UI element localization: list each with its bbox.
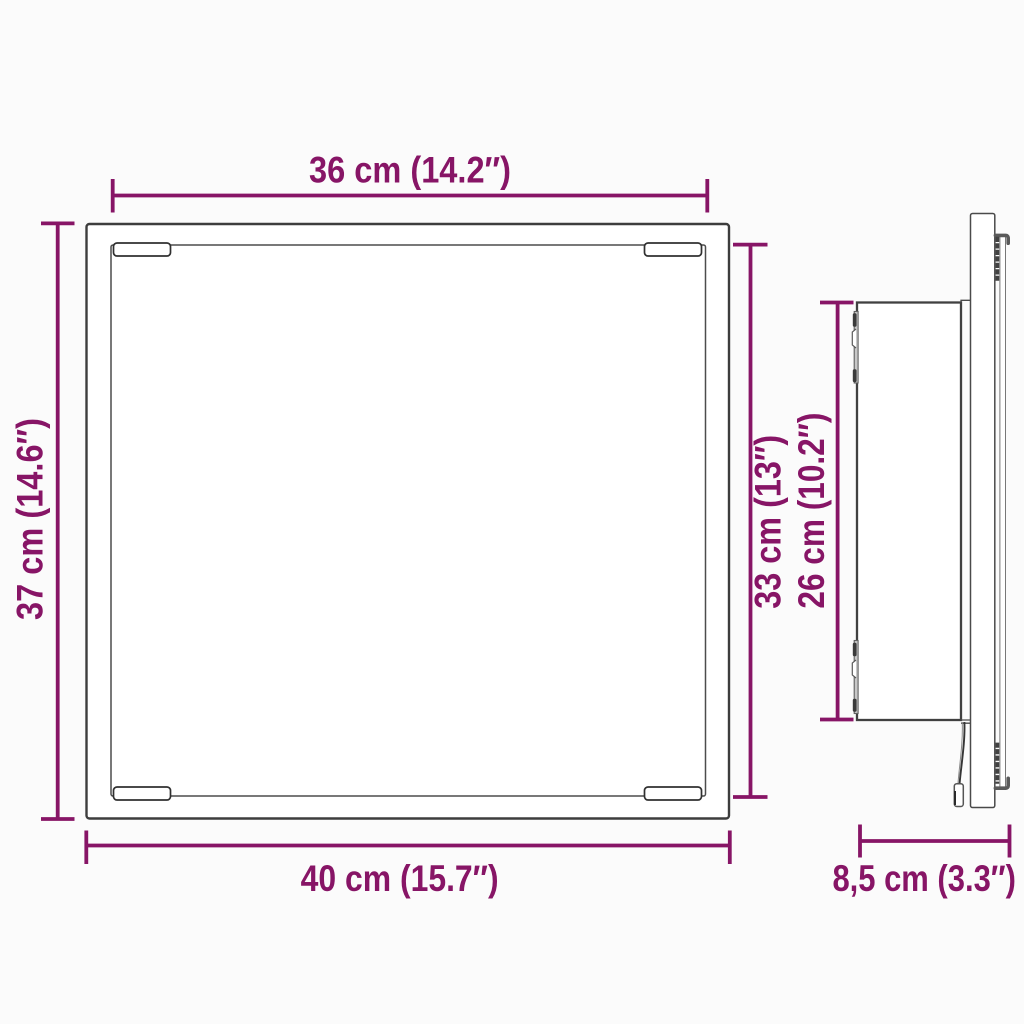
svg-text:37 cm (14.6″): 37 cm (14.6″): [10, 418, 51, 620]
svg-text:36 cm (14.2″): 36 cm (14.2″): [309, 150, 511, 191]
svg-text:8,5 cm (3.3″): 8,5 cm (3.3″): [832, 858, 1016, 899]
svg-text:40 cm (15.7″): 40 cm (15.7″): [301, 858, 499, 899]
svg-text:26 cm (10.2″): 26 cm (10.2″): [791, 413, 832, 609]
svg-text:33 cm (13″): 33 cm (13″): [748, 435, 789, 609]
